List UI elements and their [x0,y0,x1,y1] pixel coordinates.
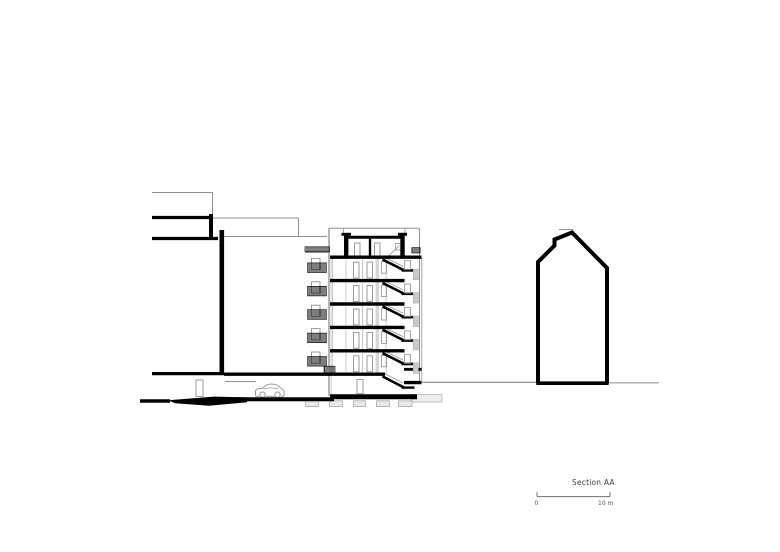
roof-railing-hatch-left [305,247,330,252]
scale-zero-label: 0 [535,501,539,507]
footing [306,401,319,407]
drawing-title: Section AA [572,479,615,487]
stair-newel-outline [405,308,411,317]
car-wheel [275,392,280,397]
interior-door-frame [354,262,360,278]
footing [377,401,390,407]
interior-door-frame [354,356,360,372]
stair-window-slit [413,293,418,304]
balcony-railing-hatch [308,357,327,367]
stair-newel-outline [405,261,411,270]
scale-max-label: 10 m [598,501,613,507]
stair-window-slit [413,363,418,374]
footing [330,401,343,407]
balcony-railing-hatch [308,310,327,320]
interior-door-frame [367,262,373,278]
balcony-railing-hatch [308,263,327,273]
interior-door-frame [367,332,373,348]
penthouse-door-frame [355,243,361,256]
car-beltline [264,388,279,389]
interior-door-frame [367,356,373,372]
penthouse-stair-outline [388,246,400,257]
interior-door-frame [354,309,360,325]
roof-railing-hatch-right [412,248,420,253]
car-wheel [260,392,265,397]
garage-door-frame [196,380,203,397]
interior-door-frame [354,332,360,348]
footing [354,401,366,407]
balcony-railing-hatch [308,286,327,296]
stair-newel-outline [405,331,411,340]
stair-window-slit [413,316,418,327]
section-drawing: Section AA 0 10 m [0,0,780,552]
drawing-svg [0,0,780,552]
right-building-outline [538,233,607,384]
stair-newel-outline [405,354,411,363]
footing [399,401,413,407]
stair-window-slit [413,339,418,350]
interior-door-frame [367,309,373,325]
stair-newel-outline [405,284,411,293]
interior-door-frame [354,286,360,302]
wall-band-corridor [376,259,379,374]
interior-door-frame [367,286,373,302]
penthouse-door-frame [375,243,381,256]
stair-window-slit [413,269,418,280]
basement-door-frame [357,380,363,394]
balcony-railing-hatch [308,333,327,343]
